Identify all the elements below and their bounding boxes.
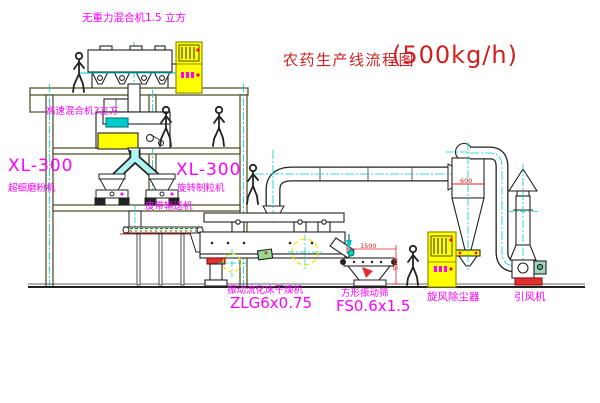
label-high-speed-mixer: 高速混合机3立方 xyxy=(46,107,119,117)
induced-draft-fan-drawing xyxy=(512,260,546,285)
belt-conveyor-drawing xyxy=(120,227,208,285)
cabinet-indicator-marks xyxy=(181,72,194,78)
control-cabinet-top xyxy=(176,42,202,93)
dim-sieve-height: 945 xyxy=(391,258,399,270)
label-dryer-model: ZLG6x0.75 xyxy=(230,296,312,311)
person-figure xyxy=(73,53,84,92)
cabinet-indicator-marks xyxy=(434,266,447,272)
flow-diagram-canvas: 农药生产线流程图 (500kg/h) 无重力混合机1.5 立方 高速混合机3立方… xyxy=(0,0,600,403)
granulator-left-drawing xyxy=(95,174,129,205)
label-gravity-mixer: 无重力混合机1.5 立方 xyxy=(82,13,186,24)
gravity-mixer-drawing xyxy=(78,46,191,112)
person-figure xyxy=(407,246,418,285)
label-granulator-name: 旋转制粒机 xyxy=(177,184,225,194)
label-fan: 引风机 xyxy=(514,292,546,303)
person-figure xyxy=(213,107,224,146)
label-cyclone: 旋风除尘器 xyxy=(427,292,480,303)
label-mill-model: XL-300 xyxy=(8,158,73,175)
dim-cyclone-width: 600 xyxy=(460,177,472,185)
label-sieve-model: FS0.6x1.5 xyxy=(336,299,410,314)
dim-sieve-length: 1500 xyxy=(360,242,377,250)
fluid-bed-dryer-drawing xyxy=(200,213,354,286)
diagram-title-capacity: (500kg/h) xyxy=(392,41,518,69)
label-mill-name: 超细磨粉机 xyxy=(8,184,56,194)
label-belt-conveyor: 皮带输送机 xyxy=(145,202,193,212)
person-figure xyxy=(247,165,258,204)
control-cabinet-right xyxy=(428,232,456,287)
label-granulator-model: XL-300 xyxy=(176,162,241,179)
ground-line xyxy=(28,284,585,287)
